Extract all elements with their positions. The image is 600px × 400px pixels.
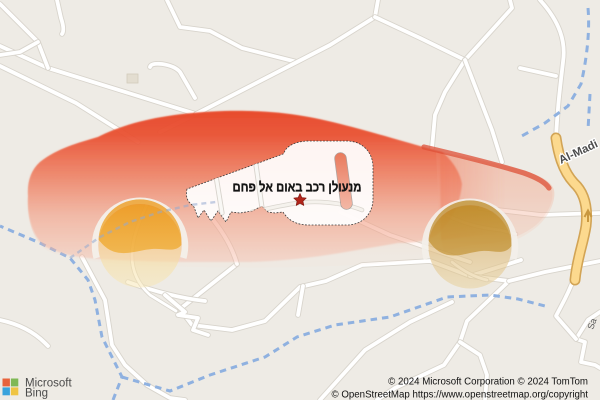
svg-text:© 2024 Microsoft Corporation ©: © 2024 Microsoft Corporation © 2024 TomT… xyxy=(388,377,588,388)
svg-text:מנעולן רכב באום אל פחם: מנעולן רכב באום אל פחם xyxy=(233,180,362,195)
svg-text:© OpenStreetMap https://www.op: © OpenStreetMap https://www.openstreetma… xyxy=(332,390,589,400)
svg-text:Bing: Bing xyxy=(25,388,48,400)
